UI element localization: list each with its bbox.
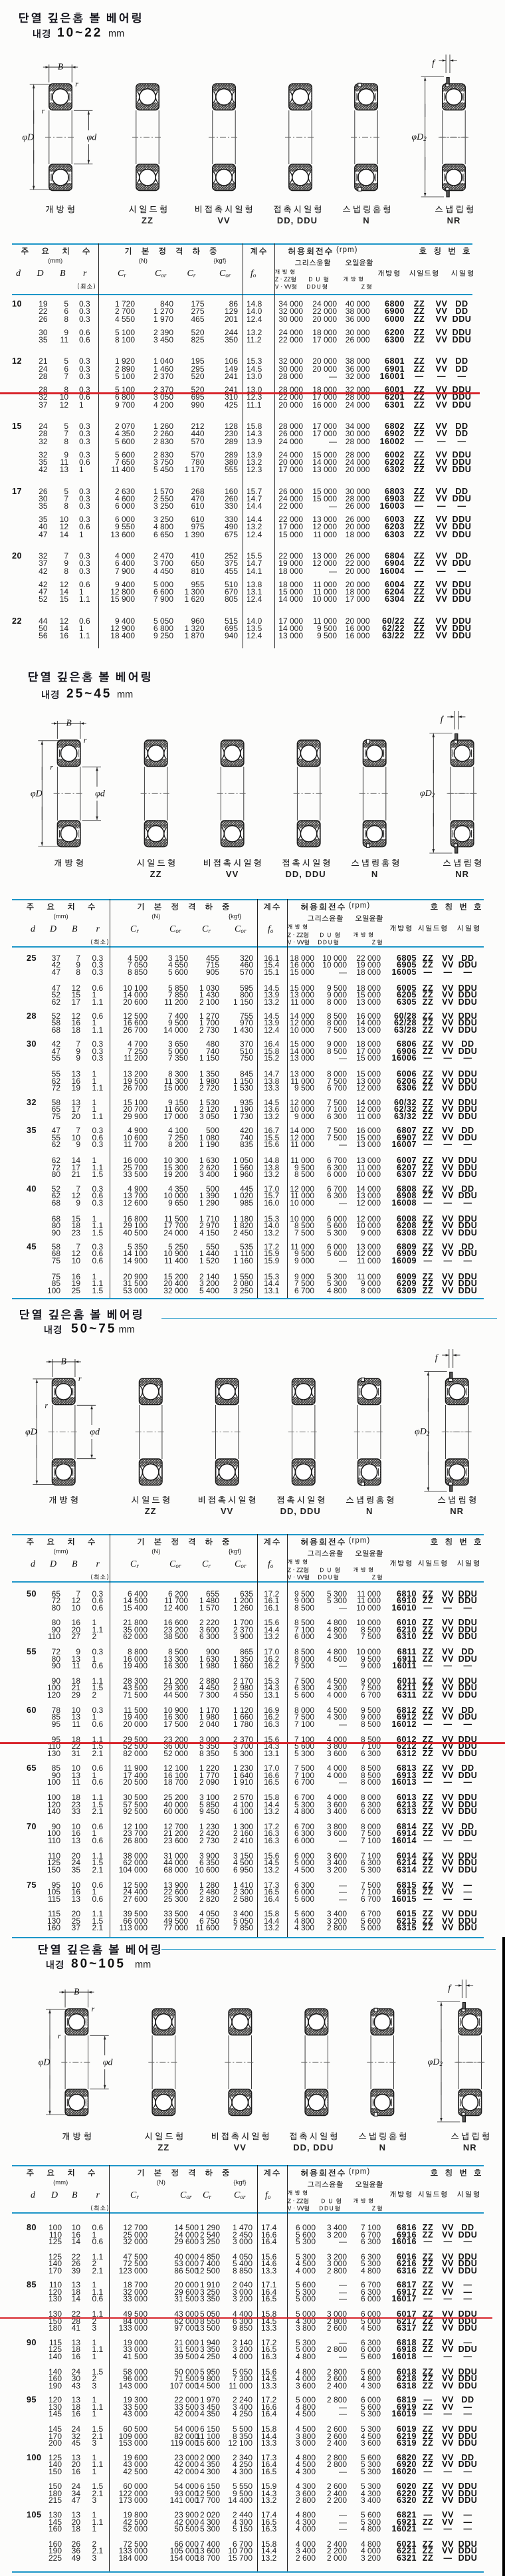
svg-text:φd: φd <box>103 2058 114 2068</box>
svg-text:φD: φD <box>22 133 34 143</box>
svg-text:r: r <box>58 2031 61 2041</box>
svg-text:r: r <box>50 762 53 771</box>
svg-text:φD2: φD2 <box>415 1427 430 1437</box>
svg-text:φD2: φD2 <box>411 132 427 142</box>
svg-text:r: r <box>75 79 78 88</box>
svg-text:r: r <box>78 1374 82 1383</box>
svg-text:f: f <box>432 58 436 68</box>
svg-text:f: f <box>435 1352 439 1362</box>
svg-text:f: f <box>448 1983 452 1993</box>
svg-text:B: B <box>74 1987 79 1997</box>
svg-text:r: r <box>45 1400 48 1410</box>
svg-text:B: B <box>61 1356 66 1366</box>
svg-text:r: r <box>42 106 45 116</box>
svg-text:φd: φd <box>95 789 106 799</box>
svg-text:r: r <box>84 735 87 745</box>
svg-text:B: B <box>66 717 71 727</box>
svg-text:φD: φD <box>31 789 43 799</box>
svg-text:φD2: φD2 <box>428 2057 443 2067</box>
svg-text:f: f <box>441 714 445 724</box>
svg-text:r: r <box>91 2004 94 2013</box>
svg-text:φd: φd <box>90 1427 100 1437</box>
svg-text:φD: φD <box>25 1427 37 1437</box>
svg-text:φD2: φD2 <box>420 789 435 799</box>
svg-text:φd: φd <box>87 133 98 143</box>
svg-text:φD: φD <box>39 2058 50 2068</box>
svg-text:B: B <box>58 62 63 72</box>
